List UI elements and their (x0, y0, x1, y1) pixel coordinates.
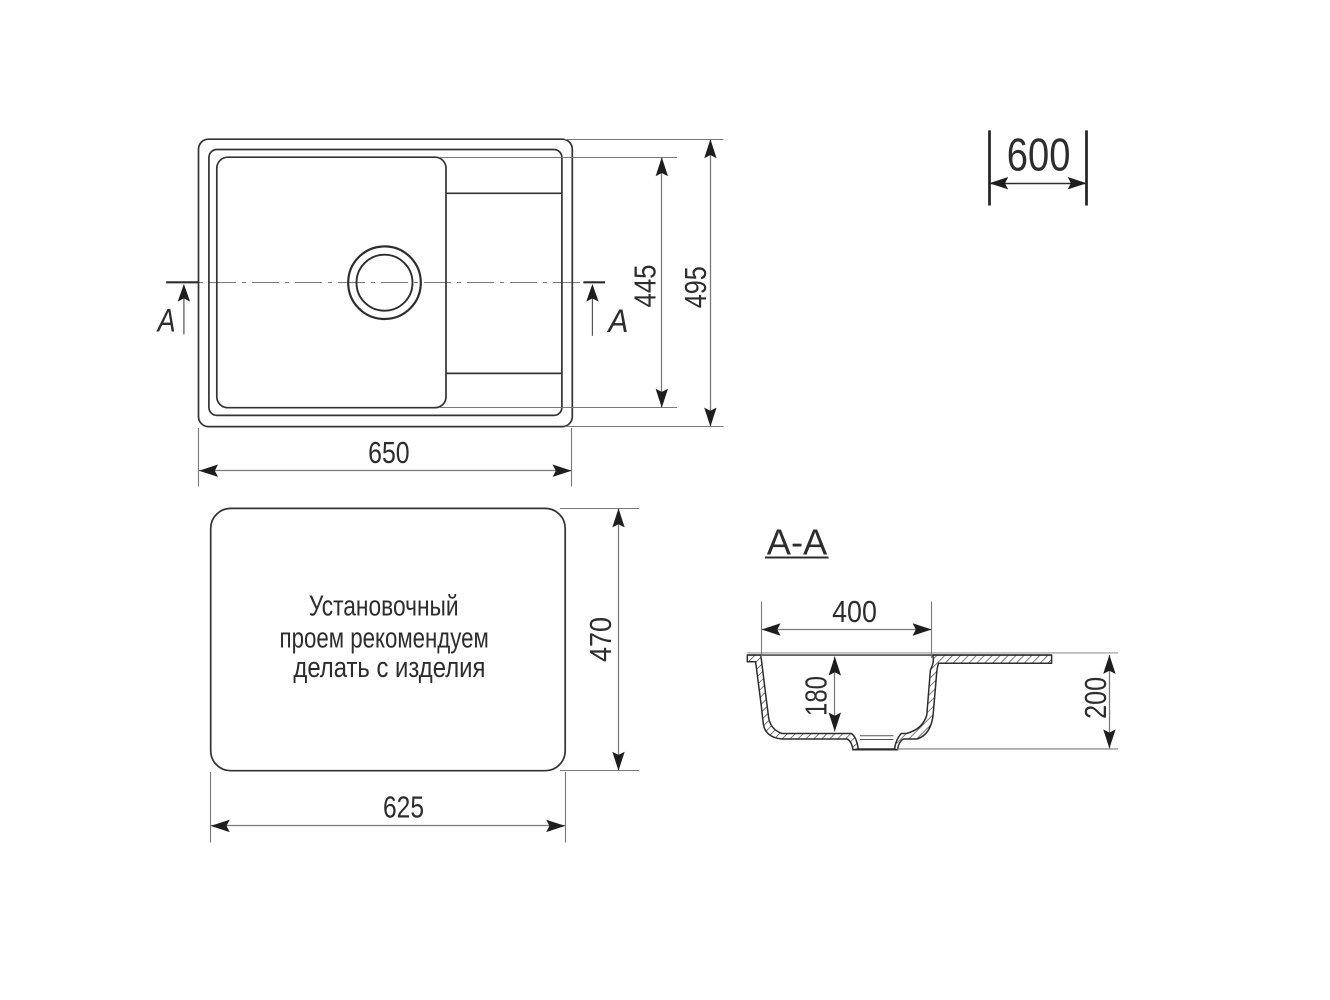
svg-text:400: 400 (832, 595, 877, 629)
svg-text:445: 445 (629, 265, 663, 308)
svg-text:проем рекомендуем: проем рекомендуем (280, 623, 489, 655)
svg-text:A-A: A-A (767, 522, 828, 563)
svg-text:200: 200 (1079, 677, 1113, 719)
svg-text:180: 180 (800, 676, 834, 716)
svg-text:470: 470 (584, 617, 618, 662)
svg-text:A: A (607, 303, 629, 339)
svg-text:A: A (156, 302, 176, 338)
svg-text:Установочный: Установочный (309, 591, 459, 623)
svg-text:650: 650 (368, 436, 410, 470)
svg-text:делать с изделия: делать с изделия (293, 652, 485, 684)
svg-text:600: 600 (1007, 128, 1071, 180)
svg-text:625: 625 (383, 791, 424, 825)
svg-text:495: 495 (679, 266, 713, 308)
